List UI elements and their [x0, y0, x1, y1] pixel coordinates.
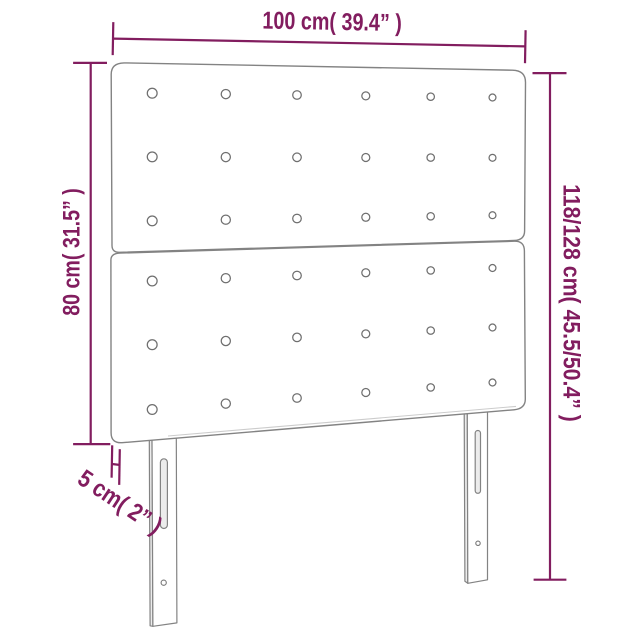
svg-text:100 cm( 39.4” ): 100 cm( 39.4” ) — [262, 7, 402, 37]
svg-text:80 cm( 31.5” ): 80 cm( 31.5” ) — [59, 188, 86, 316]
svg-text:118/128 cm( 45.5/50.4” ): 118/128 cm( 45.5/50.4” ) — [558, 184, 585, 422]
